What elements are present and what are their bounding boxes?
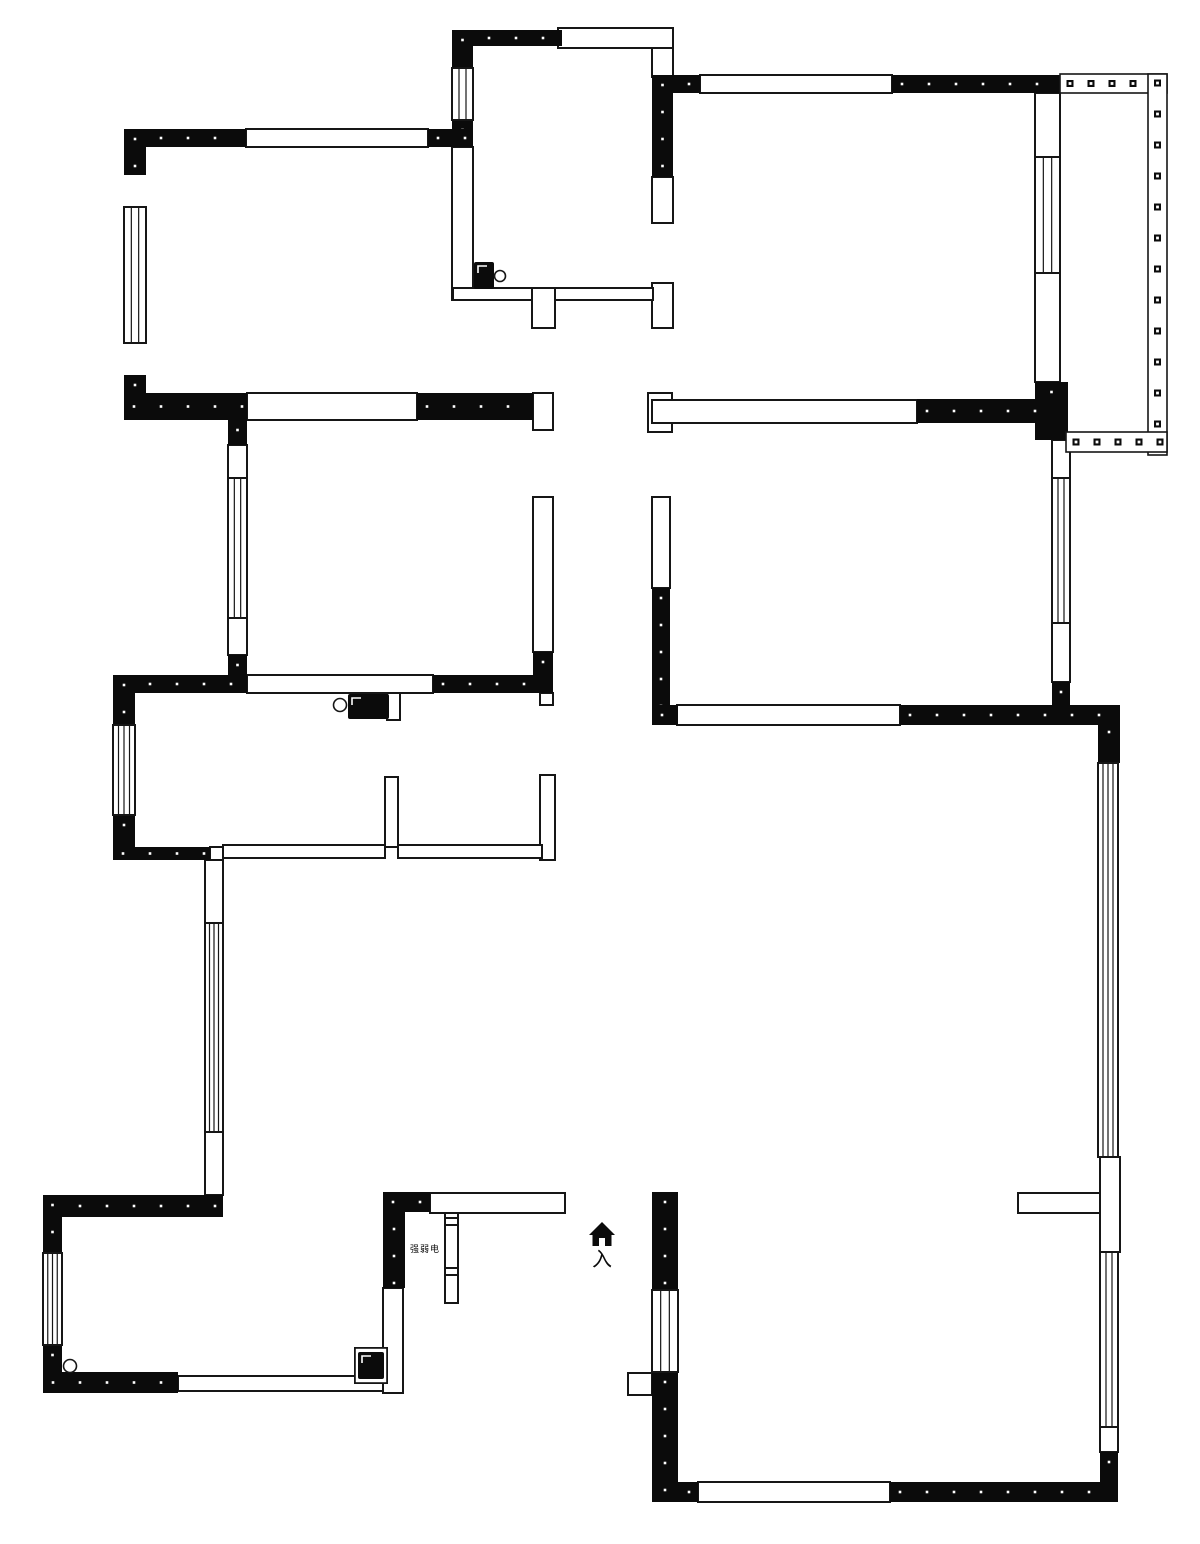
- wall-outline-segment: [698, 1482, 890, 1502]
- wall-dot: [123, 824, 126, 827]
- wall-dot: [187, 137, 190, 140]
- wall-dot: [149, 852, 152, 855]
- wall-dot: [542, 37, 545, 40]
- wall-dot: [664, 1435, 667, 1438]
- window: [1035, 157, 1060, 273]
- wall-dot: [664, 1408, 667, 1411]
- wall-outline-segment: [210, 847, 223, 860]
- railing-post-center: [1159, 441, 1162, 444]
- wall-dot: [214, 137, 217, 140]
- railing-post-center: [1156, 268, 1159, 271]
- wall-dot: [660, 651, 663, 654]
- wall-dot: [664, 1201, 667, 1204]
- wall-dot: [661, 111, 664, 114]
- wall-outline-segment: [652, 48, 673, 77]
- wall-dot: [123, 684, 126, 687]
- wall-solid-segment: [43, 1372, 178, 1393]
- wall-dot: [241, 405, 244, 408]
- wall-dot: [134, 384, 137, 387]
- wall-outline-segment: [385, 777, 398, 847]
- window: [1100, 1252, 1118, 1427]
- wall-dot: [661, 84, 664, 87]
- wall-dot: [160, 1205, 163, 1208]
- wall-dot: [515, 37, 518, 40]
- wall-dot: [79, 1381, 82, 1384]
- wall-dot: [1061, 1491, 1064, 1494]
- railing-post-center: [1096, 441, 1099, 444]
- wall-solid-segment: [113, 847, 210, 860]
- wall-outline-segment: [430, 1193, 565, 1213]
- wall-dot: [133, 1381, 136, 1384]
- railing-post-center: [1138, 441, 1141, 444]
- wall-dot: [664, 1255, 667, 1258]
- wall-outline-segment: [228, 618, 247, 655]
- wall-dot: [1071, 714, 1074, 717]
- railing-post-center: [1156, 392, 1159, 395]
- wall-outline-segment: [677, 705, 900, 725]
- wall-outline-segment: [532, 288, 555, 328]
- wall-outline-segment: [652, 283, 673, 328]
- wall-outline-segment: [1100, 1427, 1118, 1452]
- railing-post-center: [1156, 206, 1159, 209]
- wall-outline-segment: [652, 177, 673, 223]
- railing-post-center: [1156, 299, 1159, 302]
- wall-solid-segment: [1098, 722, 1120, 763]
- wall-solid-segment: [228, 420, 247, 445]
- wall-dot: [176, 852, 179, 855]
- wall-dot: [393, 1228, 396, 1231]
- wall-outline-segment: [445, 1268, 458, 1275]
- wall-solid-segment: [533, 652, 553, 693]
- entrance-label: 入: [592, 1247, 612, 1271]
- wall-dot: [442, 683, 445, 686]
- railing-post-center: [1156, 144, 1159, 147]
- balcony-railing-layer: [1060, 74, 1167, 455]
- railing-post-center: [1156, 82, 1159, 85]
- wall-dot: [419, 1201, 422, 1204]
- wall-dot: [106, 1205, 109, 1208]
- wall-outline-segment: [1052, 623, 1070, 682]
- wall-dot: [982, 83, 985, 86]
- wall-outline-segment: [205, 860, 223, 923]
- wall-dot: [909, 714, 912, 717]
- railing-post-center: [1156, 113, 1159, 116]
- wall-dot: [664, 1381, 667, 1384]
- wall-dot: [1007, 1491, 1010, 1494]
- railing-post-center: [1117, 441, 1120, 444]
- wall-dot: [523, 683, 526, 686]
- wall-dot: [953, 1491, 956, 1494]
- wall-dot: [661, 165, 664, 168]
- wall-dot: [453, 405, 456, 408]
- wall-dot: [134, 138, 137, 141]
- wall-dot: [1108, 1461, 1111, 1464]
- railing-post-center: [1156, 175, 1159, 178]
- wall-solid-segment: [890, 1482, 1118, 1502]
- wall-dot: [464, 137, 467, 140]
- wall-dot: [187, 405, 190, 408]
- window: [228, 478, 247, 618]
- wall-dot: [955, 83, 958, 86]
- wall-solid-segment: [652, 588, 670, 725]
- wall-outline-segment: [1035, 273, 1060, 382]
- wall-solid-segment: [1052, 682, 1070, 705]
- wall-dot: [660, 597, 663, 600]
- wall-dot: [980, 1491, 983, 1494]
- wall-dot: [122, 852, 125, 855]
- wall-outline-segment: [398, 845, 542, 858]
- wall-dot: [507, 405, 510, 408]
- wall-dot: [123, 711, 126, 714]
- wall-dot: [953, 410, 956, 413]
- wall-dot: [936, 714, 939, 717]
- floor-plan: 入 强弱电: [0, 0, 1200, 1544]
- wall-solid-segment: [113, 675, 135, 725]
- wall-dot: [236, 664, 239, 667]
- wall-outline-segment: [178, 1376, 383, 1391]
- window: [452, 68, 473, 120]
- wall-dot: [990, 714, 993, 717]
- wall-outline-segment: [540, 693, 553, 705]
- wall-dot: [160, 405, 163, 408]
- wall-dot: [1034, 1491, 1037, 1494]
- wall-outline-segment: [246, 129, 428, 147]
- wall-solid-segment: [452, 30, 473, 68]
- wall-dot: [160, 1381, 163, 1384]
- floor-plan-page: 入 强弱电: [0, 0, 1200, 1544]
- wall-dot: [480, 405, 483, 408]
- wall-dot: [160, 137, 163, 140]
- wall-dot: [1108, 731, 1111, 734]
- wall-solid-segment: [124, 129, 146, 175]
- wall-dot: [928, 83, 931, 86]
- wall-dot: [393, 1255, 396, 1258]
- wall-dot: [1088, 1491, 1091, 1494]
- wall-dot: [664, 1489, 667, 1492]
- wall-dot: [426, 405, 429, 408]
- wall-dot: [1009, 83, 1012, 86]
- wall-outline-segment: [628, 1373, 652, 1395]
- wall-dot: [664, 1282, 667, 1285]
- floor-drain-icon: [64, 1360, 77, 1373]
- wall-dot: [980, 410, 983, 413]
- wall-outline-segment: [1035, 93, 1060, 157]
- railing-post-center: [1090, 82, 1093, 85]
- wall-solid-segment: [383, 1192, 430, 1212]
- wall-dot: [51, 1354, 54, 1357]
- wall-dot: [133, 405, 136, 408]
- wall-dot: [230, 683, 233, 686]
- wall-outline-segment: [247, 675, 433, 693]
- railing-post-center: [1156, 330, 1159, 333]
- wall-dot: [79, 1205, 82, 1208]
- wall-dot: [106, 1381, 109, 1384]
- wall-outline-segment: [533, 497, 553, 652]
- wall-dot: [149, 683, 152, 686]
- wall-dot: [963, 714, 966, 717]
- wall-dot: [133, 1205, 136, 1208]
- wall-dot: [1036, 83, 1039, 86]
- wall-solid-segment: [417, 393, 533, 420]
- wall-dot: [1098, 714, 1101, 717]
- wall-solid-segment: [917, 399, 1060, 423]
- wall-dot: [51, 1231, 54, 1234]
- wall-outline-segment: [558, 28, 673, 48]
- wall-dot: [469, 683, 472, 686]
- wall-dot: [926, 1491, 929, 1494]
- wall-dot: [203, 852, 206, 855]
- wall-solid-segment: [892, 75, 1060, 93]
- balcony-railing: [1148, 74, 1167, 455]
- wall-dot: [661, 138, 664, 141]
- wall-dot: [688, 83, 691, 86]
- wall-outline-segment: [228, 445, 247, 478]
- wall-solid-segment: [124, 393, 247, 420]
- railing-post-center: [1156, 423, 1159, 426]
- wall-solid-segment: [900, 705, 1120, 725]
- solid-walls-layer: [43, 30, 1120, 1502]
- wall-dot: [176, 683, 179, 686]
- wall-dot: [203, 683, 206, 686]
- railing-post-center: [1069, 82, 1072, 85]
- wall-outline-segment: [1100, 1157, 1120, 1252]
- railing-post-center: [1111, 82, 1114, 85]
- wall-outline-segment: [223, 845, 385, 858]
- wall-dot: [488, 37, 491, 40]
- wall-outline-segment: [445, 1218, 458, 1225]
- wall-dot: [660, 624, 663, 627]
- wall-dot: [461, 39, 464, 42]
- wall-dot: [660, 678, 663, 681]
- gas-valve-icon: [334, 699, 347, 712]
- wall-dot: [134, 165, 137, 168]
- wall-outline-segment: [652, 497, 670, 588]
- windows-layer: [43, 68, 1118, 1427]
- wall-dot: [496, 683, 499, 686]
- entrance-house-door: [599, 1238, 605, 1246]
- wall-dot: [899, 1491, 902, 1494]
- wall-dot: [1007, 410, 1010, 413]
- railing-post-center: [1132, 82, 1135, 85]
- wall-dot: [542, 661, 545, 664]
- wall-dot: [1017, 714, 1020, 717]
- wall-outline-segment: [700, 75, 892, 93]
- window: [1052, 478, 1070, 623]
- wall-dot: [214, 1205, 217, 1208]
- wall-dot: [1044, 714, 1047, 717]
- wall-dot: [392, 1201, 395, 1204]
- wall-dot: [688, 1491, 691, 1494]
- wall-solid-segment: [652, 1192, 678, 1290]
- wall-outline-segment: [247, 393, 417, 420]
- wall-outline-segment: [533, 393, 553, 430]
- toilet-flush-icon: [495, 271, 506, 282]
- wall-dot: [664, 1228, 667, 1231]
- wall-dot: [1060, 691, 1063, 694]
- wall-outline-segment: [205, 1132, 223, 1195]
- wall-dot: [664, 1462, 667, 1465]
- wall-dot: [661, 714, 664, 717]
- wall-dot: [926, 410, 929, 413]
- wall-dot: [187, 1205, 190, 1208]
- wall-dot: [214, 405, 217, 408]
- wall-solid-segment: [652, 705, 678, 725]
- outline-walls-layer: [178, 28, 1120, 1502]
- wall-outline-segment: [1018, 1193, 1100, 1213]
- wall-dot: [51, 1204, 54, 1207]
- wall-outline-segment: [652, 400, 917, 423]
- utility-closet-label: 强弱电: [410, 1243, 440, 1255]
- wall-dot: [437, 137, 440, 140]
- wall-outline-segment: [452, 147, 473, 300]
- window: [124, 207, 146, 343]
- wall-dot: [901, 83, 904, 86]
- wall-outline-segment: [445, 1213, 458, 1303]
- wall-solid-segment: [652, 75, 673, 177]
- window: [652, 1290, 678, 1372]
- wall-dot: [52, 1381, 55, 1384]
- wall-dot: [1034, 410, 1037, 413]
- railing-post-center: [1075, 441, 1078, 444]
- railing-post-center: [1156, 361, 1159, 364]
- wall-dot: [236, 429, 239, 432]
- wall-dot: [1050, 391, 1053, 394]
- railing-post-center: [1156, 237, 1159, 240]
- wall-dot: [393, 1282, 396, 1285]
